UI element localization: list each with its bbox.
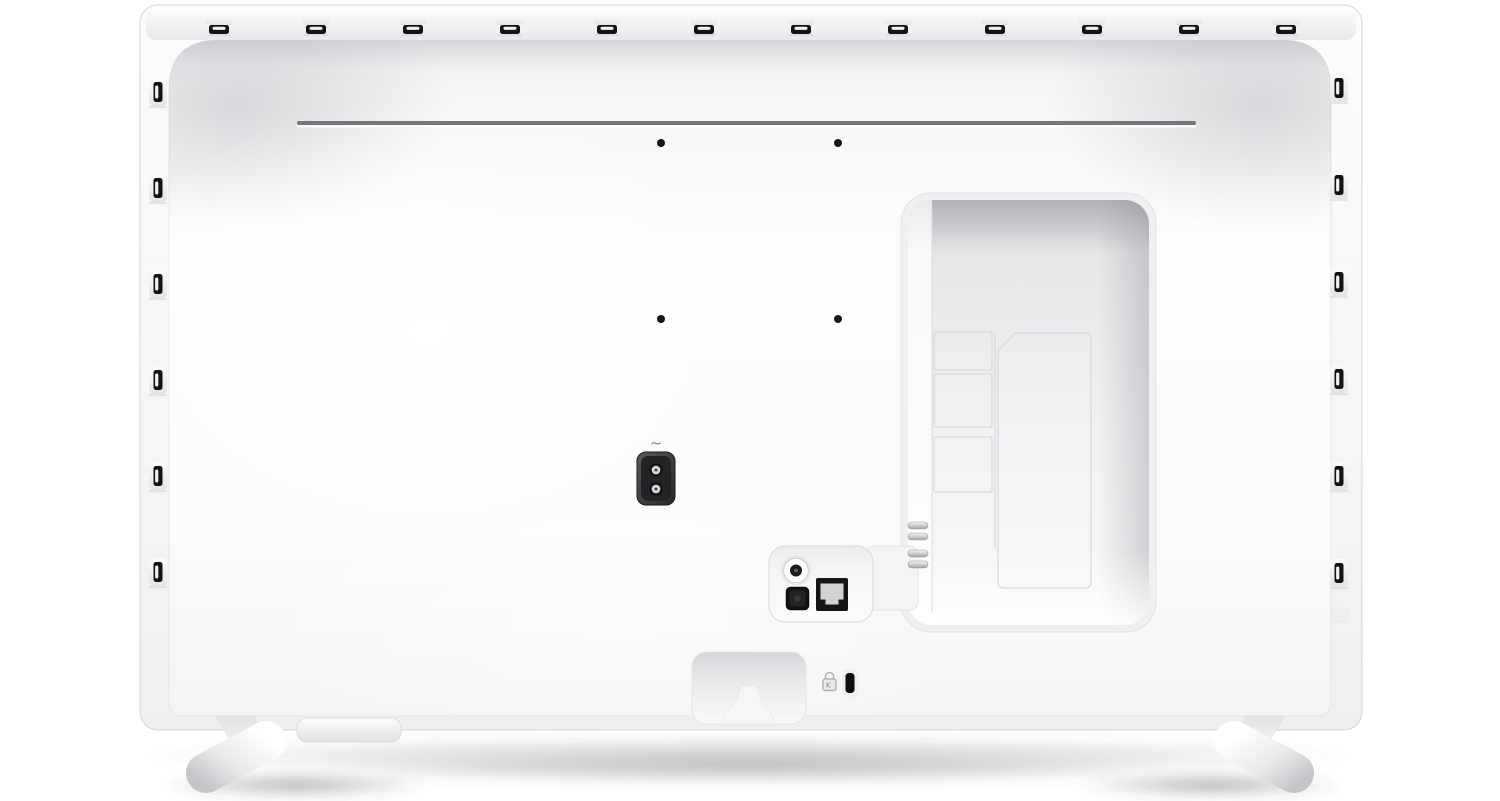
cable-clip	[908, 561, 928, 568]
bay-bottom-glow	[908, 553, 1149, 625]
vesa-hole	[657, 315, 665, 323]
side-vent	[1330, 559, 1348, 589]
side-vent	[1330, 171, 1348, 201]
top-groove	[297, 121, 1196, 127]
side-vent	[1330, 268, 1348, 298]
vesa-hole	[657, 139, 665, 147]
ports-panel	[769, 546, 873, 622]
vesa-hole	[834, 139, 842, 147]
side-vent	[149, 366, 167, 396]
groove-line	[297, 121, 1196, 125]
kensington-slot	[846, 673, 855, 693]
side-vent	[1330, 74, 1348, 104]
cable-clip	[908, 533, 928, 540]
product-photo-tv-rear: ~	[0, 0, 1500, 801]
cable-clip	[908, 550, 928, 557]
side-vent	[149, 78, 167, 108]
power-pin	[650, 464, 663, 477]
shadow-body-inner	[310, 757, 1190, 783]
side-vent	[1330, 365, 1348, 395]
foot-bar	[1234, 741, 1294, 773]
ethernet-rj45-port	[816, 578, 848, 611]
cable-clip	[908, 522, 928, 529]
ac-symbol-label: ~	[650, 434, 663, 452]
cable-tie-recess	[692, 652, 806, 724]
side-vent	[149, 462, 167, 492]
optical-audio-port	[786, 587, 809, 610]
bottom-vent-slot	[297, 718, 401, 742]
tv-back: ~	[23, 0, 1477, 780]
right-edge-notch	[1332, 608, 1348, 622]
antenna-coax-port	[782, 557, 810, 585]
side-vent	[149, 270, 167, 300]
side-vent	[149, 558, 167, 588]
vesa-hole	[834, 315, 842, 323]
side-vent	[149, 174, 167, 204]
cable-bay	[901, 193, 1156, 632]
foot-bar	[206, 741, 266, 773]
groove-highlight	[297, 125, 1196, 127]
power-pin	[650, 483, 663, 496]
side-vent	[1330, 462, 1348, 492]
